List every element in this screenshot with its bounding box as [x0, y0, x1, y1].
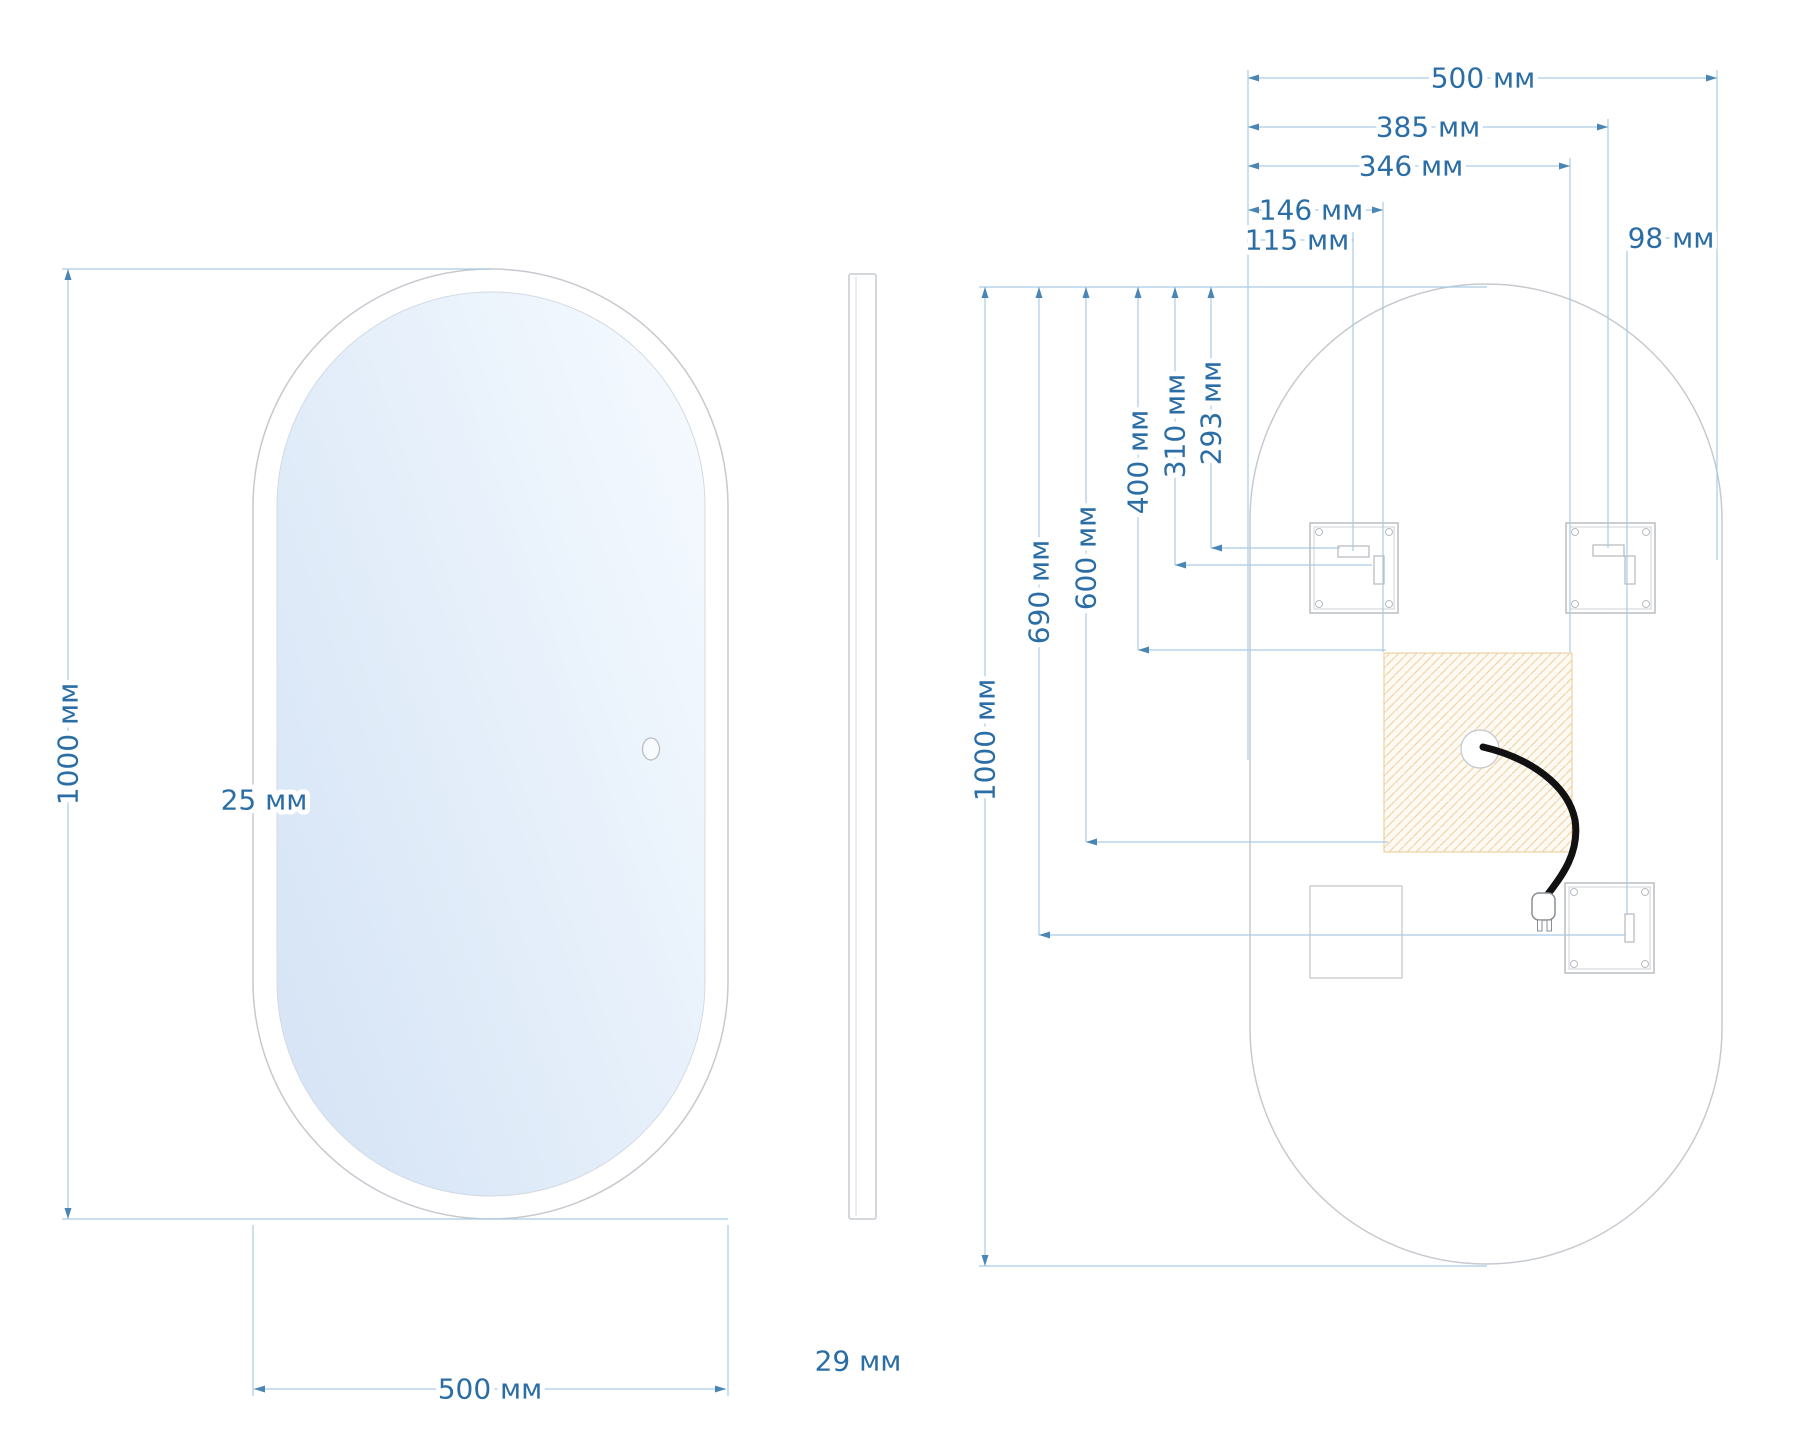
side-view: [849, 274, 876, 1219]
back-dim-310-label: 310 мм: [1159, 374, 1192, 479]
back-dim-293-label: 293 мм: [1195, 361, 1228, 466]
back-dim-346-label: 346 мм: [1359, 150, 1464, 183]
back-view: [979, 70, 1722, 1266]
back-dim-690-label: 690 мм: [1023, 540, 1056, 645]
front-height-label: 1000 мм: [52, 683, 85, 805]
back-height-label: 1000 мм: [969, 679, 1002, 801]
mirror-technical-drawing: 1000 мм 500 мм 25 мм 29 мм 500 мм 385 мм…: [0, 0, 1800, 1440]
front-view: [62, 269, 728, 1396]
mounting-plate-upper-right: [1566, 523, 1655, 613]
side-profile: [849, 274, 876, 1219]
back-dim-600-label: 600 мм: [1070, 506, 1103, 611]
front-frame-label: 25 мм: [221, 784, 308, 817]
back-dim-115-label: 115 мм: [1245, 224, 1350, 257]
keyhole-slot-vertical: [1625, 914, 1634, 942]
back-dim-98-label: 98 мм: [1628, 222, 1715, 255]
front-mirror-glass: [277, 292, 705, 1196]
front-width-label: 500 мм: [438, 1373, 543, 1406]
mounting-plate-upper-left: [1310, 523, 1398, 613]
front-width-dimension: [253, 1225, 728, 1396]
back-dim-400-label: 400 мм: [1122, 410, 1155, 515]
mounting-plate-lower-right: [1565, 883, 1654, 973]
back-dim-146-label: 146 мм: [1259, 194, 1364, 227]
touch-sensor-icon: [643, 738, 660, 760]
back-width-label: 500 мм: [1431, 62, 1536, 95]
side-thickness-label: 29 мм: [815, 1345, 902, 1378]
driver-box: [1310, 886, 1402, 978]
back-dim-385-label: 385 мм: [1376, 111, 1481, 144]
